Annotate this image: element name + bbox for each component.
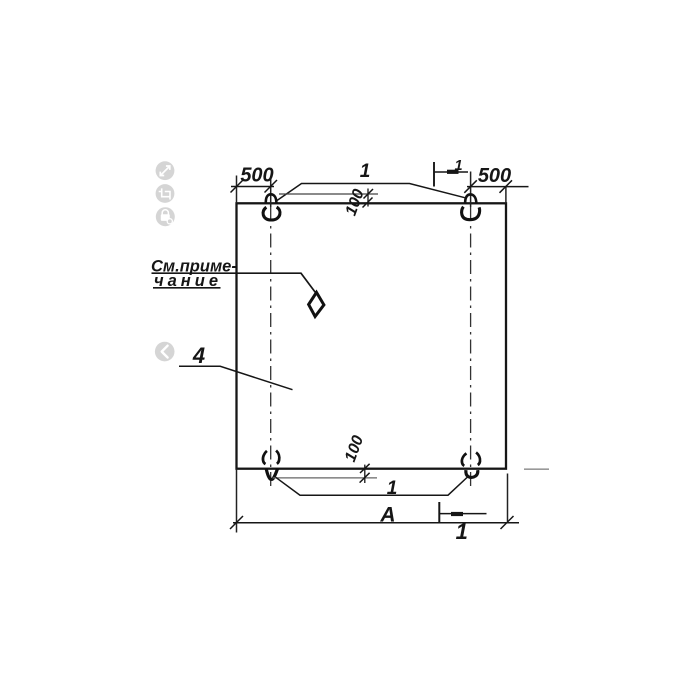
svg-text:1: 1 <box>387 478 398 499</box>
svg-text:1: 1 <box>456 519 468 544</box>
svg-text:1: 1 <box>454 158 462 174</box>
svg-text:500: 500 <box>478 165 511 187</box>
svg-text:А: А <box>379 504 395 527</box>
svg-text:500: 500 <box>240 165 273 187</box>
svg-text:1: 1 <box>360 161 371 182</box>
svg-text:4: 4 <box>192 343 205 368</box>
